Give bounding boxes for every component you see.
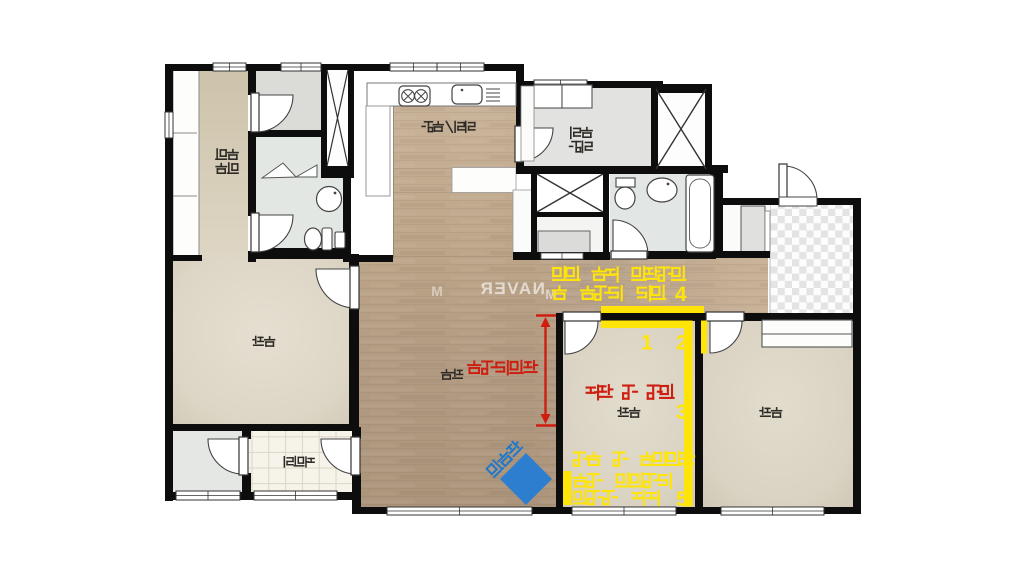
svg-text:2: 2 [676,332,688,355]
svg-text:3: 3 [676,401,688,424]
svg-text:4: 4 [675,283,687,306]
svg-text:NAVER: NAVER [479,279,545,298]
svg-text:1: 1 [641,332,653,355]
svg-text:M: M [431,283,443,299]
svg-text:5: 5 [676,488,688,511]
